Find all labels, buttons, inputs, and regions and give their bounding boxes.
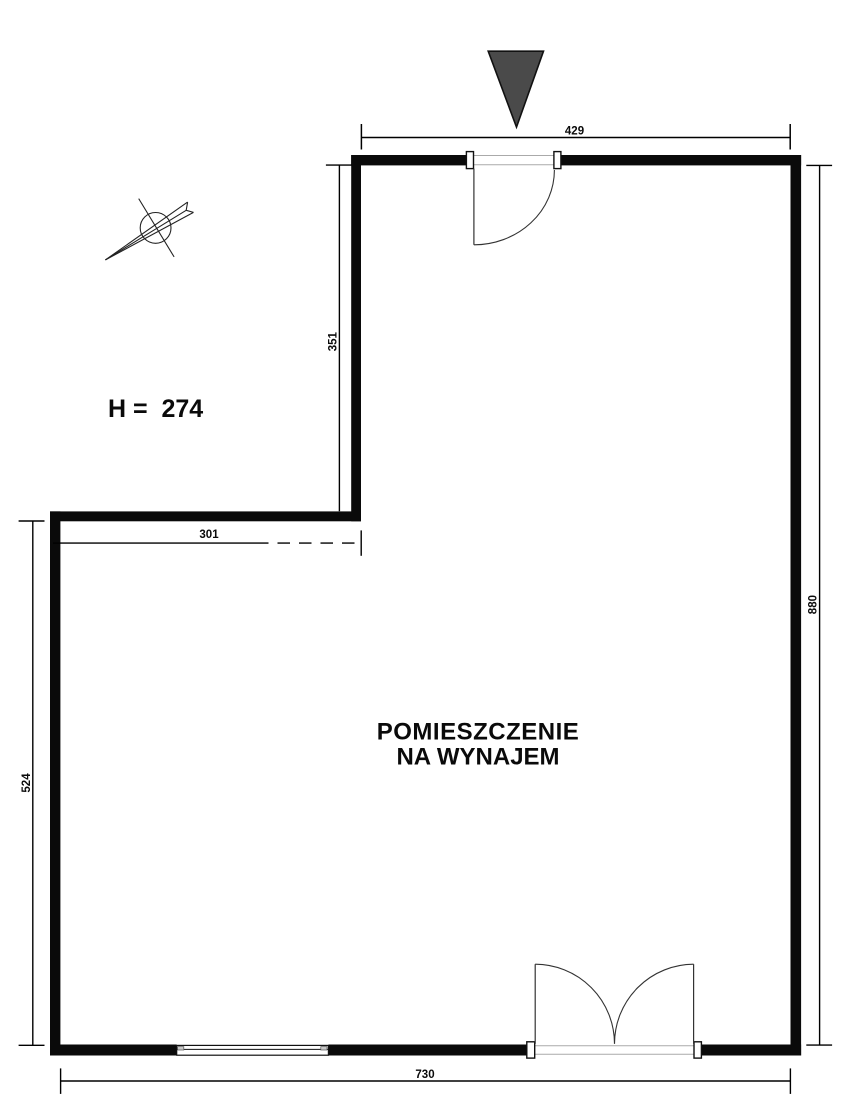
svg-text:POMIESZCZENIE: POMIESZCZENIE [377,719,580,746]
svg-text:880: 880 [808,595,820,614]
svg-text:H = 274: H = 274 [108,395,203,423]
svg-text:NA WYNAJEM: NA WYNAJEM [396,744,559,771]
svg-text:351: 351 [328,332,340,352]
svg-text:524: 524 [21,773,33,793]
svg-text:301: 301 [199,529,219,541]
svg-text:429: 429 [565,126,584,138]
svg-text:730: 730 [415,1069,434,1081]
